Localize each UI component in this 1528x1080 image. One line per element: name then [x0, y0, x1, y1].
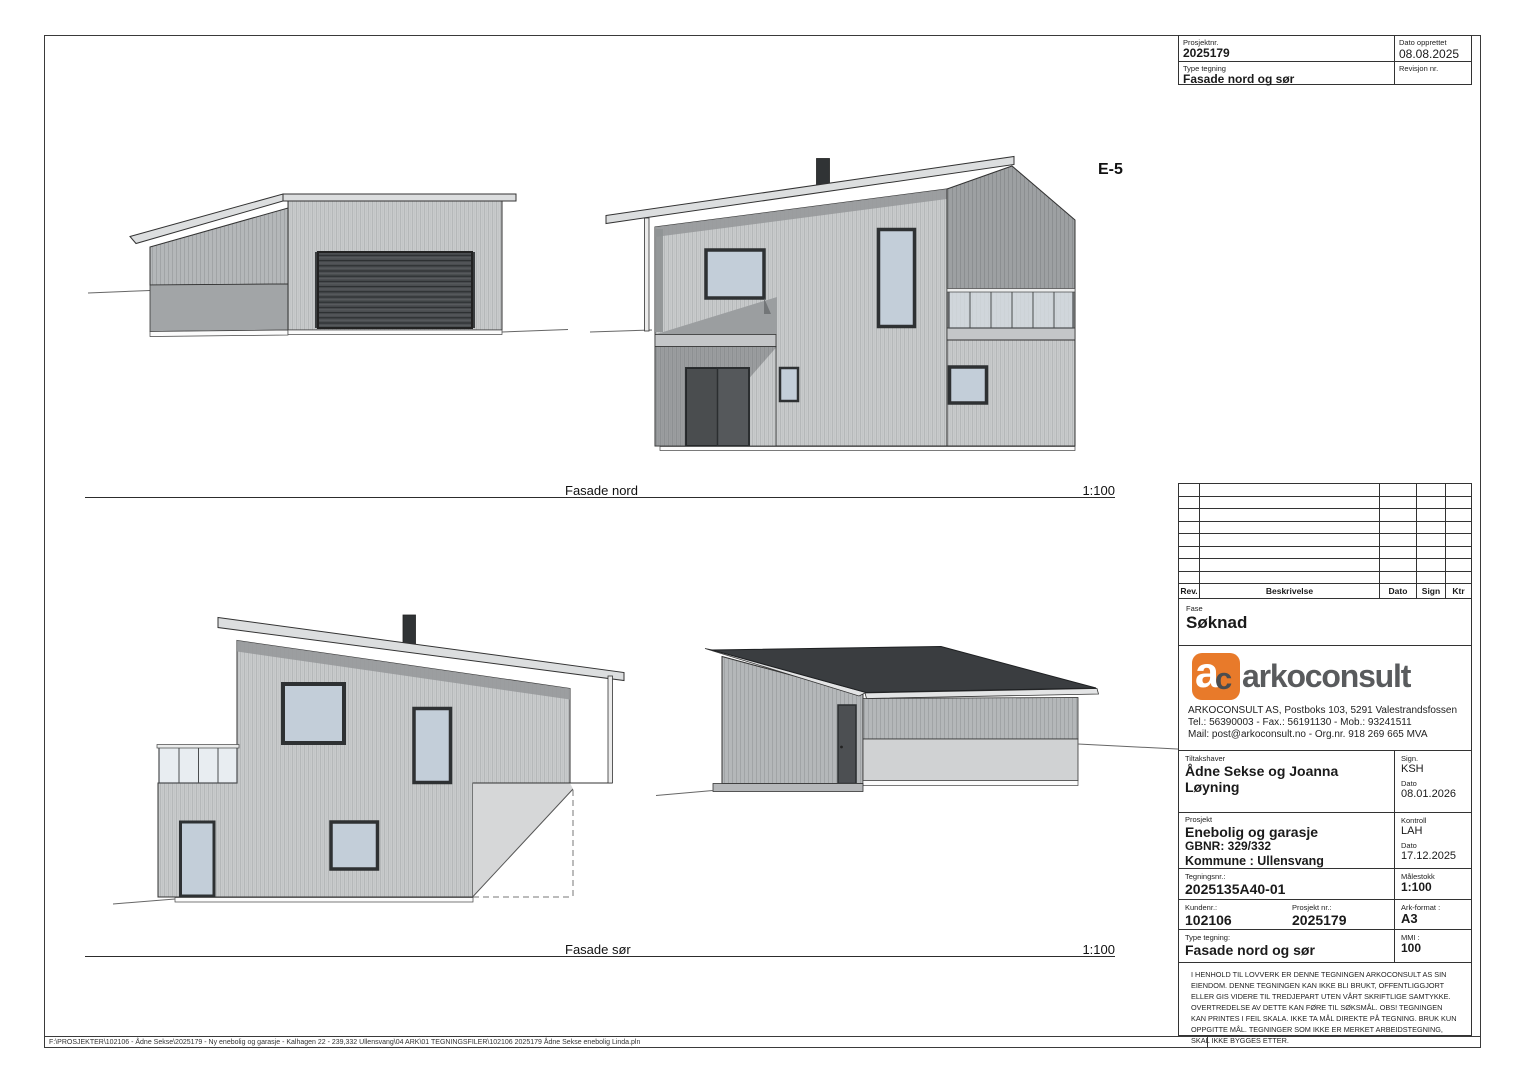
- view-rule-south: [85, 956, 1115, 957]
- sign-value: KSH: [1401, 763, 1465, 776]
- field-arkformat: Ark-format : A3: [1394, 900, 1471, 929]
- kontroll-dato-value: 17.12.2025: [1401, 850, 1465, 863]
- field-sign: Sign. KSH Dato 08.01.2026: [1394, 751, 1471, 812]
- field-tegningsnr: Tegningsnr.: 2025135A40-01: [1179, 869, 1394, 899]
- sign-dato-value: 08.01.2026: [1401, 788, 1465, 801]
- company-wordmark: arkoconsult: [1242, 659, 1410, 694]
- field-dato-opprettet: Dato opprettet 08.08.2025: [1395, 36, 1473, 61]
- tegningsnr-value: 2025135A40-01: [1185, 881, 1388, 897]
- prosjekt-value: Enebolig og garasje: [1185, 824, 1388, 840]
- field-label: Sign.: [1401, 754, 1465, 763]
- field-label: Kontroll: [1401, 816, 1465, 825]
- field-prosjekt: Prosjekt Enebolig og garasje GBNR: 329/3…: [1179, 813, 1394, 868]
- field-label: Dato: [1401, 841, 1465, 850]
- field-value: Fasade nord og sør: [1183, 73, 1390, 87]
- gbnr-value: GBNR: 329/332: [1185, 840, 1388, 854]
- field-label: Tegningsnr.:: [1185, 872, 1388, 881]
- mmi-value: 100: [1401, 942, 1465, 956]
- fase-value: Søknad: [1186, 613, 1464, 633]
- prosjektnr2-value: 2025179: [1292, 912, 1388, 928]
- type-tegning2-value: Fasade nord og sør: [1185, 942, 1388, 958]
- field-label: Dato opprettet: [1399, 38, 1469, 47]
- rev-header-beskrivelse: Beskrivelse: [1199, 584, 1379, 598]
- malestokk-value: 1:100: [1401, 881, 1465, 895]
- kundenr-box: Kundenr.: 102106 Prosjekt nr.: 2025179 A…: [1179, 900, 1471, 930]
- disclaimer-text: I HENHOLD TIL LOVVERK ER DENNE TEGNINGEN…: [1179, 963, 1471, 1047]
- field-tiltakshaver: Tiltakshaver Ådne Sekse og Joanna Løynin…: [1179, 751, 1394, 812]
- disclaimer-box: I HENHOLD TIL LOVVERK ER DENNE TEGNINGEN…: [1179, 963, 1471, 1037]
- field-malestokk: Målestokk 1:100: [1394, 869, 1471, 899]
- view-label-north: Fasade nord: [565, 483, 638, 498]
- field-prosjektnr: Prosjektnr. 2025179: [1179, 36, 1394, 61]
- rev-header-dato: Dato: [1379, 584, 1416, 598]
- company-address: ARKOCONSULT AS, Postboks 103, 5291 Vales…: [1188, 705, 1457, 742]
- rev-header-rev: Rev.: [1179, 584, 1199, 598]
- tiltakshaver-value: Ådne Sekse og Joanna Løyning: [1185, 763, 1350, 795]
- field-revisjon: Revisjon nr.: [1395, 62, 1473, 86]
- view-label-south: Fasade sør: [565, 942, 631, 957]
- divider: [1207, 1036, 1208, 1048]
- fase-box: Fase Søknad: [1179, 599, 1471, 646]
- field-label: Prosjekt: [1185, 815, 1388, 824]
- arkformat-value: A3: [1401, 912, 1465, 927]
- tegningsnr-box: Tegningsnr.: 2025135A40-01 Målestokk 1:1…: [1179, 869, 1471, 900]
- address-line: Mail: post@arkoconsult.no - Org.nr. 918 …: [1188, 729, 1457, 741]
- view-scale-north: 1:100: [1055, 483, 1115, 498]
- field-label: Type tegning:: [1185, 933, 1388, 942]
- field-value: 08.08.2025: [1399, 47, 1469, 61]
- drawing-sheet: E-5 Fasade nord 1:100 Fasade sør 1:100 P…: [0, 0, 1528, 1080]
- field-label: Revisjon nr.: [1399, 64, 1469, 73]
- kundenr-value: 102106: [1185, 912, 1280, 928]
- field-type-tegning2: Type tegning: Fasade nord og sør: [1179, 930, 1394, 962]
- kommune-value: Kommune : Ullensvang: [1185, 854, 1388, 868]
- address-line: Tel.: 56390003 - Fax.: 56191130 - Mob.: …: [1188, 717, 1457, 729]
- field-label: Kundenr.:: [1185, 903, 1280, 912]
- revision-table: Rev. Beskrivelse Dato Sign Ktr: [1179, 484, 1471, 599]
- field-label: Dato: [1401, 779, 1465, 788]
- company-box: a c arkoconsult ARKOCONSULT AS, Postboks…: [1179, 646, 1471, 751]
- file-path-bar: F:\PROSJEKTER\102106 - Ådne Sekse\202517…: [44, 1036, 1481, 1048]
- logo-letter-c: c: [1215, 660, 1232, 697]
- rev-header-ktr: Ktr: [1445, 584, 1471, 598]
- drawing-code: E-5: [1098, 161, 1123, 179]
- view-scale-south: 1:100: [1055, 942, 1115, 957]
- field-mmi: MMI : 100: [1394, 930, 1471, 962]
- view-rule-north: [85, 497, 1115, 498]
- field-kontroll: Kontroll LAH Dato 17.12.2025: [1394, 813, 1471, 868]
- kontroll-value: LAH: [1401, 825, 1465, 838]
- tiltakshaver-box: Tiltakshaver Ådne Sekse og Joanna Løynin…: [1179, 751, 1471, 813]
- field-prosjektnr2: Prosjekt nr.: 2025179: [1286, 900, 1394, 929]
- field-kundenr: Kundenr.: 102106: [1179, 900, 1286, 929]
- rev-header-sign: Sign: [1416, 584, 1445, 598]
- field-label: Tiltakshaver: [1185, 754, 1388, 763]
- title-block-top: Prosjektnr. 2025179 Dato opprettet 08.08…: [1178, 35, 1472, 85]
- prosjekt-box: Prosjekt Enebolig og garasje GBNR: 329/3…: [1179, 813, 1471, 869]
- address-line: ARKOCONSULT AS, Postboks 103, 5291 Vales…: [1188, 705, 1457, 717]
- title-block: Rev. Beskrivelse Dato Sign Ktr Fase Søkn…: [1178, 483, 1472, 1036]
- field-value: 2025179: [1183, 47, 1390, 61]
- field-label: Fase: [1186, 604, 1464, 613]
- type-tegning-box: Type tegning: Fasade nord og sør MMI : 1…: [1179, 930, 1471, 963]
- field-label: Prosjekt nr.:: [1292, 903, 1388, 912]
- field-type-tegning: Type tegning Fasade nord og sør: [1179, 62, 1394, 86]
